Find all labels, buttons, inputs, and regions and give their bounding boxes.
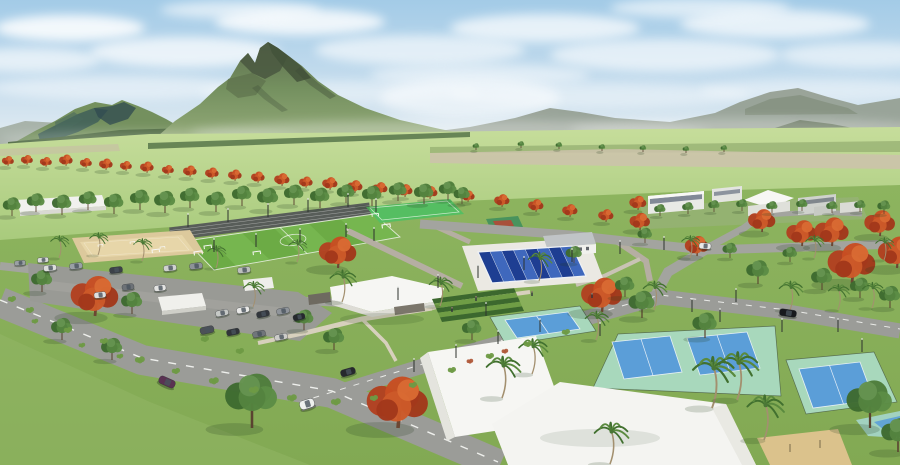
person [531,291,533,296]
person [591,293,593,298]
aerial-rendering-sports-complex [0,0,900,465]
cloud [0,15,145,41]
cloud [160,1,320,19]
scene-svg [0,0,900,465]
person [475,296,477,301]
cloud [380,78,560,118]
tennis-court [612,336,682,379]
person [451,307,453,312]
cloud [450,14,640,42]
car [698,243,712,252]
cloud [550,39,780,71]
